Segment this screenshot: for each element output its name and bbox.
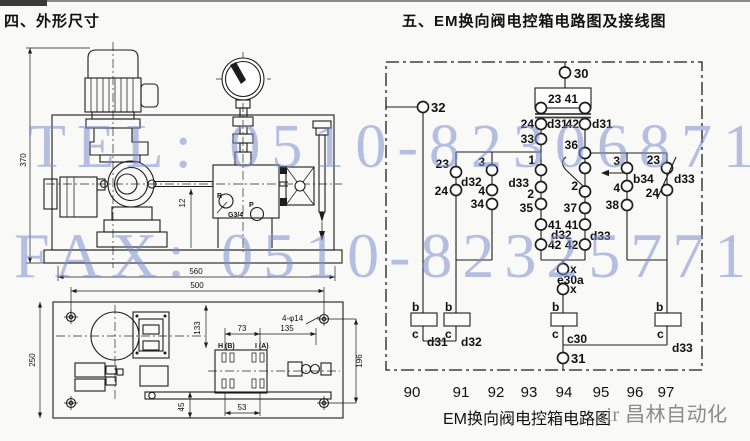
strip-94: 94 (556, 384, 573, 401)
box-d33-b: b (656, 300, 663, 314)
port-thread-label: G3/4 (228, 212, 243, 219)
contact-d31-right: d31 (592, 117, 613, 131)
box-d33-c: c (657, 327, 664, 341)
plan-view-dimensions: 250 4-φ14 133 73 135 196 45 53 (28, 302, 364, 418)
strip-97: 97 (658, 384, 675, 401)
box-d32-b: b (445, 300, 452, 314)
c-node-2r: 2 (571, 179, 578, 193)
c-node-1: 1 (528, 153, 535, 167)
box-d33: b c d33 (655, 300, 693, 355)
drawing-canvas: R G3/4 P 370 12 (0, 0, 750, 441)
strip-92: 92 (488, 384, 505, 401)
strip-96: 96 (627, 384, 644, 401)
pump-head (97, 161, 167, 247)
relay-boxes: b c d31 b c d32 b c c30 b (411, 300, 693, 370)
node-24: 24 (521, 117, 535, 131)
rb-contact-b34: b34 (633, 172, 654, 186)
c-contact-d33: d33 (508, 176, 529, 190)
hole-bottom-right (317, 396, 331, 410)
dim-196: 196 (355, 354, 364, 368)
relay-coil-d31: 30 23 41 24 d31 42 d31 33 36 (521, 62, 613, 159)
motor (85, 50, 158, 128)
dim-560: 560 (189, 267, 203, 276)
scan-edge-artifact (0, 0, 750, 6)
terminal-32-label: 32 (431, 100, 445, 115)
box-d33-name: d33 (672, 341, 693, 355)
terminal-31-label: 31 (571, 351, 585, 366)
rb-node-4: 4 (613, 181, 620, 195)
lb-node-24: 24 (435, 184, 449, 198)
dim-4xphi14: 4-φ14 (282, 314, 304, 323)
terminal-strip-numbers: 90 91 92 93 94 95 96 97 (404, 384, 675, 401)
dim-133: 133 (193, 321, 202, 335)
side-view: R G3/4 P 370 12 (19, 42, 342, 314)
rb-contact-d33: d33 (674, 172, 695, 186)
pump-bracket (90, 128, 148, 162)
c-node-37: 37 (564, 201, 578, 215)
port-r-label: R (217, 193, 222, 200)
hole-top-right (317, 312, 331, 326)
coil-box-label: 23 41 (548, 92, 578, 106)
yoke-top-view (288, 362, 331, 376)
dim-370: 370 (19, 153, 28, 167)
box-d32-name: d32 (461, 335, 482, 349)
dim-73: 73 (238, 324, 247, 333)
left-damper-unit (44, 177, 108, 217)
terminal-30-label: 30 (574, 66, 588, 81)
rb-node-38: 38 (606, 198, 620, 212)
lb-node-4: 4 (478, 184, 485, 198)
node-42: 42 (566, 117, 580, 131)
valve-block: R G3/4 P (213, 165, 279, 248)
c-node-2: 2 (527, 187, 534, 201)
rb-node-24: 24 (646, 186, 660, 200)
box-d32-c: c (445, 327, 452, 341)
lb-node-23: 23 (436, 157, 450, 171)
strip-93: 93 (521, 384, 538, 401)
strip-91: 91 (453, 384, 470, 401)
hole-bottom-left (64, 396, 78, 410)
box-d31: b c d31 (411, 300, 448, 349)
pump-top-view (75, 363, 168, 391)
node-36: 36 (565, 138, 579, 152)
e30a-chain: x e30a x (541, 260, 585, 313)
c-node-42a: 42 (548, 238, 562, 252)
lb-node-34: 34 (471, 197, 485, 211)
c-node-35: 35 (520, 201, 534, 215)
box-c30-name: c30 (567, 332, 587, 346)
lb-node-3: 3 (478, 155, 485, 169)
hole-top-left (64, 310, 78, 324)
dim-500: 500 (190, 281, 204, 290)
dim-45: 45 (177, 402, 186, 411)
x-bottom-label: x (570, 282, 577, 296)
dim-135: 135 (280, 324, 294, 333)
circuit-diagram: 30 23 41 24 d31 42 d31 33 36 32 (386, 62, 702, 428)
port-a-label: I (A) (255, 343, 269, 350)
c-contact-d33b: d33 (590, 229, 611, 243)
dipstick (313, 121, 331, 241)
dim-12: 12 (178, 198, 187, 207)
box-d31-c: c (412, 327, 419, 341)
box-c30-c: c (552, 327, 559, 341)
dim-53: 53 (238, 403, 247, 412)
rb-node-23: 23 (647, 153, 661, 167)
rb-node-3: 3 (613, 154, 620, 168)
strip-95: 95 (593, 384, 610, 401)
port-b-label: H (B) (218, 343, 235, 350)
circuit-caption: EM换向阀电控箱电路图 (443, 410, 611, 428)
port-p-label: P (249, 202, 254, 209)
node-33: 33 (521, 132, 535, 146)
dim-250: 250 (28, 353, 37, 367)
center-left-chain: 1 d33 2 35 (508, 145, 546, 261)
plan-view: H (B) I (A) 250 4-φ14 133 73 1 (28, 302, 364, 418)
rail-32: 32 (386, 100, 445, 313)
strip-90: 90 (404, 384, 421, 401)
c-node-42b: 42 (565, 238, 579, 252)
valve-block-top-view: H (B) I (A) (215, 343, 269, 393)
box-d31-b: b (412, 300, 419, 314)
box-d32: b c d32 (444, 300, 482, 349)
pressure-gauge (222, 58, 264, 100)
box-c30-b: b (552, 300, 559, 314)
